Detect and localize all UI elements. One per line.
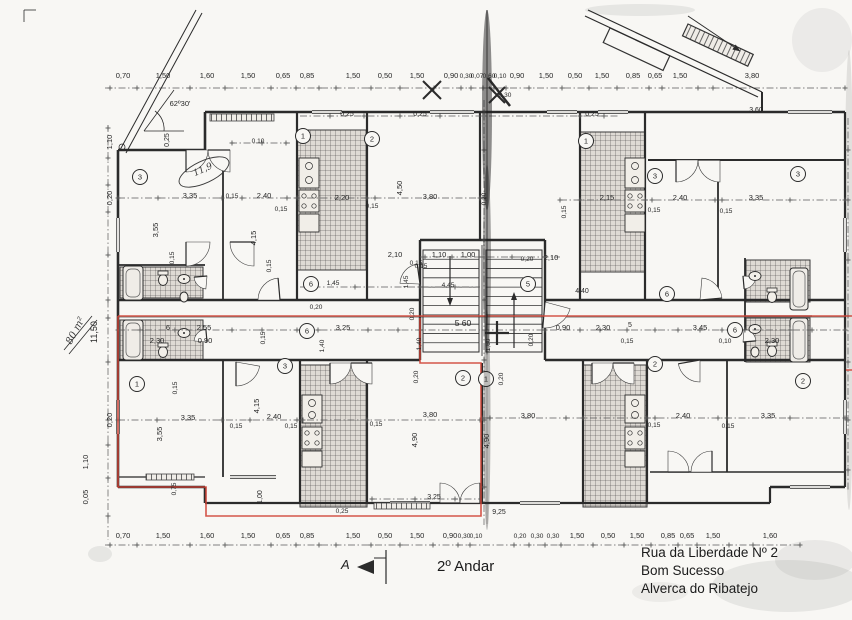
- dim-label: 3,80: [745, 71, 760, 80]
- dim-label: 2,30: [596, 323, 611, 332]
- dim-label: 0,20: [498, 372, 505, 385]
- room-number: 1: [584, 137, 588, 146]
- dim-label: 0,20: [409, 307, 416, 320]
- dim-label: 0,15: [648, 207, 661, 214]
- dim-label: 0,15: [230, 423, 243, 430]
- dim-label: 0,20: [514, 533, 527, 540]
- dim-label: 0,25: [340, 111, 354, 118]
- dim-label: 0,70: [116, 531, 131, 540]
- room-number: 6: [665, 290, 669, 299]
- dim-label: 2,40: [673, 193, 688, 202]
- kitchen-unit: [625, 451, 645, 467]
- railing: [374, 503, 430, 509]
- dim-label: 0,25: [164, 133, 171, 147]
- door-swing: [668, 451, 689, 472]
- address-block: Rua da Liberdade Nº 2 Bom Sucesso Alverc…: [641, 544, 778, 598]
- dim-label: 1,60: [200, 71, 215, 80]
- room-number: 2: [653, 360, 657, 369]
- room-number: 6: [305, 327, 309, 336]
- dim-label: 3,60: [749, 107, 763, 114]
- dim-label: 1,50: [630, 531, 645, 540]
- railing: [210, 114, 274, 121]
- dim-label: 2,10: [388, 250, 403, 259]
- scan-smudge: [775, 540, 852, 580]
- dim-label: 0,20: [528, 333, 535, 346]
- kitchen-unit: [302, 427, 322, 449]
- dim-label: 0,20: [105, 413, 114, 428]
- dim-label: 0,10: [494, 73, 507, 80]
- dim-label: 2,15: [600, 193, 615, 202]
- kitchen-unit: [625, 190, 645, 212]
- kitchen-unit: [625, 214, 645, 232]
- dim-label: 4,90: [410, 433, 419, 448]
- room-number: 2: [461, 374, 465, 383]
- dim-label: 0,15: [415, 263, 428, 270]
- toilet: [159, 347, 168, 358]
- dim-label: 1,60: [200, 531, 215, 540]
- dim-label: 3,25: [336, 323, 351, 332]
- address-line-3: Alverca do Ribatejo: [641, 580, 778, 598]
- dim-label: 1,50: [706, 531, 721, 540]
- dim-label: 2,40: [267, 412, 282, 421]
- dim-label: 3,55: [151, 223, 160, 238]
- dim-label: 2,40: [257, 191, 272, 200]
- dim-label: 2,30: [150, 336, 165, 345]
- dim-label: 4,15: [252, 399, 261, 414]
- dim-label: 0,50: [378, 71, 393, 80]
- dim-label: 3,80: [423, 410, 438, 419]
- dim-label: 1,50: [595, 71, 610, 80]
- dim-label: 0,65: [648, 71, 663, 80]
- dim-label: 1,45: [327, 280, 340, 287]
- door-swing: [258, 278, 280, 300]
- door-swing: [460, 483, 480, 503]
- washbasin-drain: [754, 275, 756, 277]
- dim-label: 0,30: [547, 533, 560, 540]
- dim-label: 1,00: [461, 250, 476, 259]
- room-number: 3: [283, 362, 287, 371]
- dim-label: 1,50: [539, 71, 554, 80]
- room-number: 3: [796, 170, 800, 179]
- dim-label: 0,15: [648, 422, 661, 429]
- dim-label: 1,40: [319, 339, 326, 352]
- dim-label: 0,85: [300, 71, 315, 80]
- dim-label: 4,15: [249, 231, 258, 246]
- dim-label: 0,50: [378, 531, 393, 540]
- dim-label: 0,25: [413, 111, 427, 118]
- dim-label: 9,25: [492, 509, 506, 516]
- dim-label: 2,55: [197, 323, 212, 332]
- dim-label: 2,20: [335, 193, 350, 202]
- dim-label: 0,20: [413, 370, 420, 383]
- room-number: 6: [733, 326, 737, 335]
- kitchen-unit: [299, 190, 319, 212]
- address-line-1: Rua da Liberdade Nº 2: [641, 544, 778, 562]
- dim-label: 0,65: [276, 531, 291, 540]
- scan-smudge: [88, 546, 112, 562]
- room-number: 1: [301, 132, 305, 141]
- floor-title: 2º Andar: [437, 558, 494, 575]
- dim-label: 1,00: [257, 490, 264, 504]
- dim-label: 3,80: [521, 411, 536, 420]
- door-swing: [236, 362, 260, 386]
- dim-label: 1,50: [346, 531, 361, 540]
- dim-label: 0,20: [521, 256, 534, 263]
- handwritten-note: 80 m²: [64, 315, 88, 346]
- dim-label: 0,20: [310, 304, 323, 311]
- scan-smudge: [792, 8, 852, 72]
- window: [842, 218, 848, 252]
- dim-label: 0,20: [105, 191, 114, 206]
- dim-label: 0,90: [444, 71, 459, 80]
- window: [547, 109, 577, 115]
- dim-label: 0,10: [470, 533, 483, 540]
- dim-label: 4,45: [442, 282, 455, 289]
- dim-label: 3,55: [155, 427, 164, 442]
- dim-label: 2,40: [676, 411, 691, 420]
- window: [430, 109, 474, 115]
- dim-label: 1,50: [156, 71, 171, 80]
- window: [520, 500, 560, 506]
- window: [115, 218, 121, 252]
- address-line-2: Bom Sucesso: [641, 562, 778, 580]
- bidet: [751, 347, 759, 357]
- dim-label: 0,15: [260, 331, 267, 344]
- dim-label: 1,50: [346, 71, 361, 80]
- dim-label: 0,25: [585, 111, 599, 118]
- dim-label: 0,15: [720, 208, 733, 215]
- room-number: 3: [653, 172, 657, 181]
- dim-label: 0,15: [226, 193, 239, 200]
- window: [230, 474, 276, 480]
- kitchen-unit: [302, 451, 322, 467]
- dim-label: 0,85: [661, 531, 676, 540]
- dim-label: 0,15: [722, 423, 735, 430]
- fold-crease: [484, 310, 491, 530]
- annotation-line: [126, 13, 202, 153]
- dim-label: 0,30: [531, 533, 544, 540]
- scan-smudge: [585, 4, 695, 16]
- kitchen-unit: [299, 214, 319, 232]
- dim-label: 0,90: [556, 323, 571, 332]
- toilet-tank: [767, 288, 777, 292]
- railing: [146, 474, 194, 480]
- dim-label: 0,05: [81, 490, 90, 505]
- dim-label: 1,50: [673, 71, 688, 80]
- section-cut-arrow: [357, 560, 374, 574]
- dim-label: 3,25: [427, 494, 441, 501]
- dim-label: 3,35: [749, 193, 764, 202]
- dim-label: 1,60: [763, 531, 778, 540]
- room-number: 5: [526, 280, 530, 289]
- dim-label: 0,90: [510, 71, 525, 80]
- dim-label: 0,15: [172, 381, 179, 394]
- door-swing: [691, 451, 712, 472]
- dim-label: 1,10: [105, 135, 114, 150]
- dim-label: 1,50: [570, 531, 585, 540]
- room-number: 6: [309, 280, 313, 289]
- dim-label: 4,50: [395, 181, 404, 196]
- dim-label: 0,50: [601, 531, 616, 540]
- window: [790, 484, 830, 490]
- dim-label: 1,50: [241, 531, 256, 540]
- dim-label: 0,10: [252, 138, 265, 145]
- door-swing: [698, 160, 720, 182]
- dim-label: 0,15: [169, 251, 176, 264]
- dim-label: 0,15: [275, 206, 288, 213]
- kitchen-unit: [625, 427, 645, 449]
- dim-label: 3,35: [181, 413, 196, 422]
- dim-label: 0,15: [370, 421, 383, 428]
- annotation-line: [120, 10, 196, 150]
- dim-label: 5: [628, 322, 632, 329]
- dim-label: 1,45: [403, 275, 410, 288]
- toilet: [768, 292, 777, 303]
- dim-label: 0,10: [719, 338, 732, 345]
- dim-label: 0,15: [561, 205, 568, 218]
- dim-label: 0,85: [626, 71, 641, 80]
- dim-label: 0,15: [266, 259, 273, 272]
- window: [788, 109, 832, 115]
- dim-label: 0,65: [276, 71, 291, 80]
- dim-label: 0,15: [621, 338, 634, 345]
- dim-label: 0,85: [300, 531, 315, 540]
- plan-layers: 0,701,501,601,500,650,851,500,501,500,90…: [24, 4, 852, 612]
- dim-label: 1,10: [81, 455, 90, 470]
- room-number: 3: [138, 173, 142, 182]
- dim-label: 3,80: [423, 192, 438, 201]
- door-swing: [676, 160, 698, 182]
- dim-label: 0,90: [443, 531, 458, 540]
- door-swing: [440, 483, 460, 503]
- dim-label: 11,50: [89, 321, 99, 343]
- stair-arrow-head: [447, 298, 453, 306]
- scan-page: 0,701,501,601,500,650,851,500,501,500,90…: [0, 0, 852, 620]
- dim-label: 3,45: [693, 323, 708, 332]
- dim-label: 62º30': [170, 99, 191, 108]
- dim-label: 5 60: [455, 318, 472, 328]
- section-marker-a: A: [341, 557, 350, 572]
- toilet: [768, 346, 777, 357]
- room-number: 2: [370, 135, 374, 144]
- dim-label: 1,10: [432, 250, 447, 259]
- dim-label: 0,50: [568, 71, 583, 80]
- dim-label: 0,25: [336, 508, 349, 515]
- dim-label: 2,30: [765, 336, 780, 345]
- annotation-line: [144, 90, 174, 131]
- dim-label: 3,35: [761, 411, 776, 420]
- dim-label: 0,75: [171, 482, 178, 495]
- dim-label: 1,50: [156, 531, 171, 540]
- toilet: [159, 275, 168, 286]
- dim-label: 1,50: [241, 71, 256, 80]
- dim-label: 0,70: [116, 71, 131, 80]
- washbasin-drain: [183, 332, 185, 334]
- dim-label: 1,50: [410, 71, 425, 80]
- dim-label: 1,50: [410, 531, 425, 540]
- bidet: [180, 292, 188, 302]
- dim-label: 6: [166, 323, 170, 332]
- washbasin-drain: [183, 278, 185, 280]
- door-swing: [186, 242, 210, 266]
- window: [312, 109, 342, 115]
- dim-label: 0,90: [198, 336, 213, 345]
- dim-label: 1,40: [416, 337, 423, 350]
- dim-label: 4,40: [575, 288, 589, 295]
- dim-label: 0,15: [285, 423, 298, 430]
- room-number: 1: [135, 380, 139, 389]
- toilet-tank: [158, 271, 168, 275]
- floor-plan-svg: 0,701,501,601,500,650,851,500,501,500,90…: [0, 0, 852, 620]
- dim-label: 0,15: [366, 203, 379, 210]
- dim-label: 0,65: [680, 531, 695, 540]
- annex-structure: [603, 28, 670, 70]
- room-number: 2: [801, 377, 805, 386]
- dim-label: 2,10: [544, 253, 559, 262]
- dim-label: 3,35: [183, 191, 198, 200]
- window: [598, 109, 628, 115]
